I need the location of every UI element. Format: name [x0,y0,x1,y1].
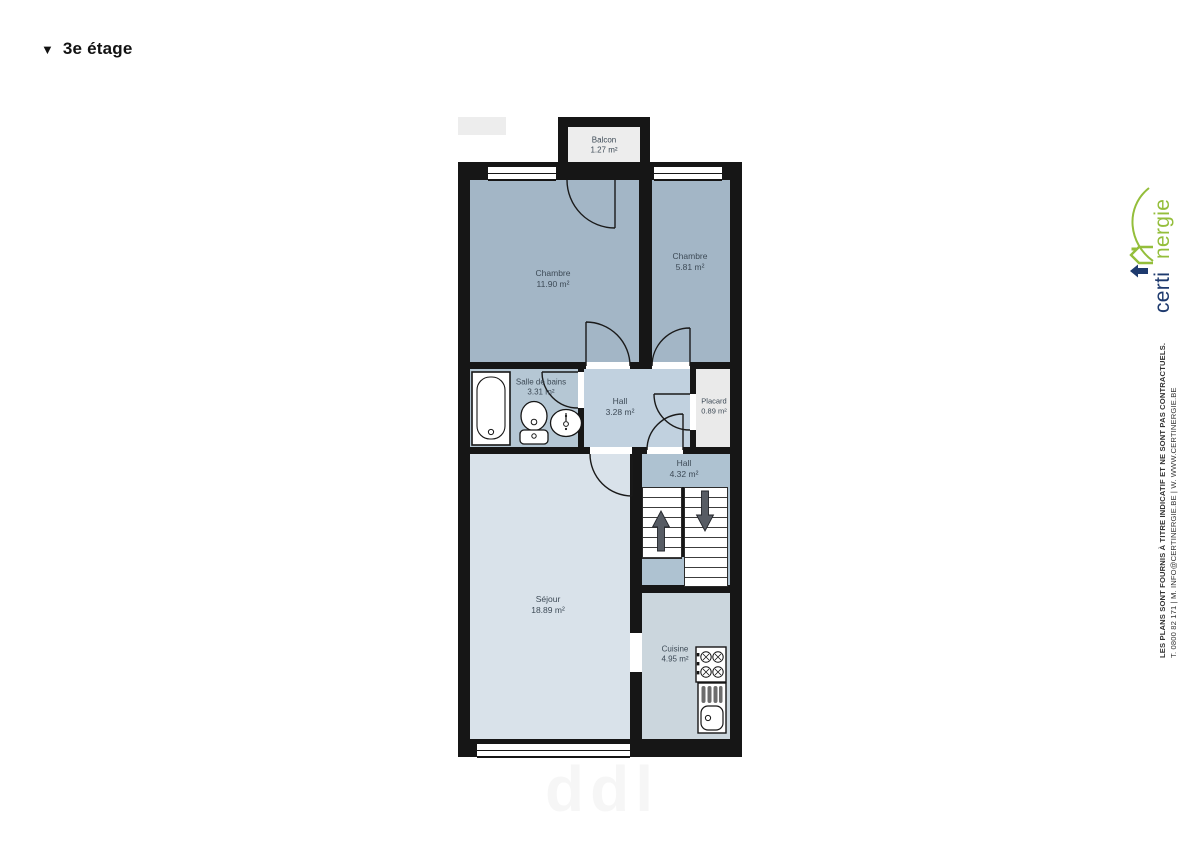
label-chambre-2: Chambre 5.81 m² [673,251,708,273]
label-placard: Placard 0.89 m² [701,396,726,416]
logo-text-certi: certi [1151,272,1175,313]
plan-symbols [458,117,742,757]
stairs-up-arrow-icon [653,511,670,551]
door-arc-chambre-1 [586,322,630,366]
label-balcon: Balcon 1.27 m² [590,136,617,157]
door-arc-balcony [567,180,615,228]
label-salle-de-bains: Salle de bains 3.31 m² [516,378,566,399]
stove-icon [696,647,726,682]
disclaimer-text: LES PLANS SONT FOURNIS À TITRE INDICATIF… [1157,350,1181,658]
certinergie-logo: certi nergie [1127,184,1183,316]
bathtub-icon [472,372,510,445]
disclaimer-line-2: T. 0800 82 171 | M. INFO@CERTINERGIE.BE … [1168,350,1179,658]
floor-title: 3e étage [63,39,133,59]
washbasin-icon [551,410,582,437]
floorplan: Balcon 1.27 m² Chambre 11.90 m² Chambre … [458,117,742,757]
door-arc-placard [654,394,690,430]
label-cuisine: Cuisine 4.95 m² [661,645,688,666]
label-chambre-1: Chambre 11.90 m² [536,268,571,290]
logo-text-nergie: nergie [1151,199,1175,259]
kitchen-sink-icon [698,683,726,733]
disclaimer-line-1: LES PLANS SONT FOURNIS À TITRE INDICATIF… [1157,350,1168,658]
triangle-marker-icon: ▼ [41,43,54,56]
toilet-icon [520,402,548,445]
page-title: ▼ 3e étage [41,39,133,59]
label-hall-2: Hall 4.32 m² [670,458,699,480]
stairs-down-arrow-icon [697,491,714,531]
label-sejour: Séjour 18.89 m² [531,594,565,616]
door-arc-hall-2 [647,414,683,450]
watermark: ddl [545,752,659,826]
label-hall-1: Hall 3.28 m² [606,396,635,418]
door-arc-chambre-2 [652,328,690,366]
door-arc-sejour [590,454,632,496]
